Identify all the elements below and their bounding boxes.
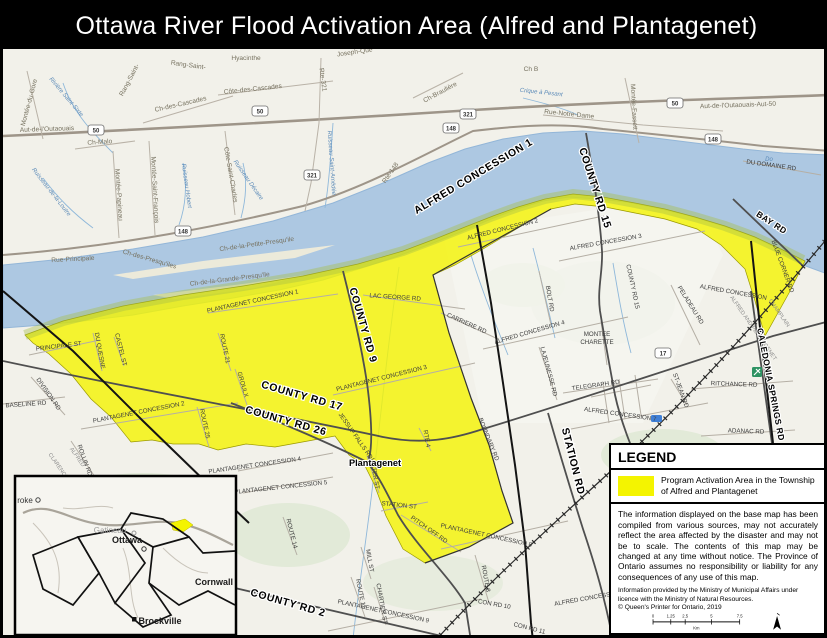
activation-area-label: Program Activation Area in the Township … xyxy=(661,475,818,497)
legend-item-activation-area: Program Activation Area in the Township … xyxy=(611,470,825,504)
svg-text:148: 148 xyxy=(178,229,189,235)
svg-text:17: 17 xyxy=(660,351,667,357)
scale-tick-label: 5 xyxy=(710,613,713,618)
scale-bar: 01.252.557.5Km xyxy=(611,612,825,633)
highway-shield: 148 xyxy=(705,134,721,144)
map-label: Ch B xyxy=(524,66,539,73)
svg-text:50: 50 xyxy=(93,128,100,134)
highway-shield: 50 xyxy=(252,106,268,116)
scale-tick-label: 0 xyxy=(652,613,655,618)
highway-shield: 148 xyxy=(443,123,459,133)
highway-shield: 148 xyxy=(175,226,191,236)
inset-label: Ottawa xyxy=(112,535,143,545)
svg-text:321: 321 xyxy=(463,112,474,118)
highway-shield: 50 xyxy=(667,98,683,108)
highway-shield: 321 xyxy=(460,109,476,119)
svg-text:50: 50 xyxy=(257,109,264,115)
svg-text:50: 50 xyxy=(672,101,679,107)
highway-shield: 50 xyxy=(88,125,104,135)
legend-title: LEGEND xyxy=(611,445,825,470)
map-label: Plantagenet xyxy=(349,458,401,468)
inset-label: Cornwall xyxy=(195,577,233,587)
inset-label: roke xyxy=(17,496,33,505)
attribution-text: Information provided by the Ministry of … xyxy=(611,584,825,612)
north-arrow xyxy=(773,613,781,629)
svg-text:148: 148 xyxy=(446,126,457,132)
page-title: Ottawa River Flood Activation Area (Alfr… xyxy=(3,3,827,49)
highway-shield: 17 xyxy=(655,348,671,358)
disclaimer-text: The information displayed on the base ma… xyxy=(611,504,825,584)
map-document: Ottawa River Flood Activation Area (Alfr… xyxy=(0,0,827,638)
highway-shield: 321 xyxy=(304,170,320,180)
scale-tick-label: 7.5 xyxy=(737,613,743,618)
activation-area-swatch xyxy=(618,476,654,496)
park-poi-icon xyxy=(752,367,762,377)
map-label: ADANAC RD xyxy=(728,427,765,435)
map-label: CHARETTE xyxy=(580,339,613,346)
inset-label: Brockville xyxy=(138,616,181,626)
map-label: MONTEE xyxy=(584,331,610,338)
svg-text:148: 148 xyxy=(708,137,719,143)
map-label: Hyacinthe xyxy=(231,55,261,62)
svg-text:321: 321 xyxy=(307,173,318,179)
scale-tick-label: 1.25 xyxy=(667,613,676,618)
inset-label: Gatineau xyxy=(94,526,126,535)
inset-map: rokeGatineauOttawaCornwallBrockville xyxy=(15,476,236,635)
legend-panel: LEGEND Program Activation Area in the To… xyxy=(609,443,827,635)
scale-unit: Km xyxy=(693,626,700,631)
scale-tick-label: 2.5 xyxy=(682,613,688,618)
